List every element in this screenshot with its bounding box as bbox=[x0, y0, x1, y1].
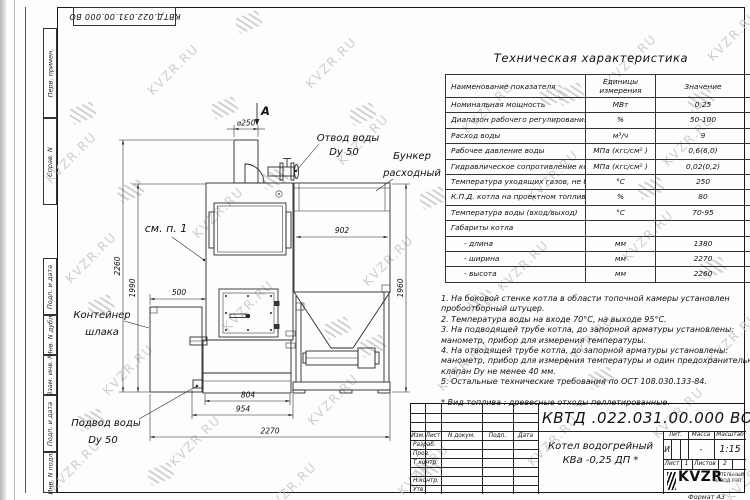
format-label: Формат А3 bbox=[688, 493, 745, 500]
tb-mass-value: - bbox=[688, 439, 714, 459]
notes-list: 1. На боковой стенке котла в области топ… bbox=[441, 294, 743, 408]
callouts: Отвод воды Dy 50 Бункер расходный см. п.… bbox=[71, 133, 441, 446]
top-stamp-text: КВТД.022.031.00.000 ВО bbox=[69, 12, 181, 21]
note-line: 5. Остальные технические требования по О… bbox=[441, 377, 743, 387]
spec-header-units: Единицы измерения bbox=[586, 75, 656, 98]
tb-role-utv: Утв. bbox=[411, 485, 443, 494]
margin-column-inv-dubl: Инв. N дубл. bbox=[43, 315, 57, 355]
note-line: 1. На боковой стенке котла в области топ… bbox=[441, 294, 743, 304]
tb-designation: КВТД .022.031.00.000 ВО bbox=[542, 405, 742, 430]
label-container-2: шлака bbox=[85, 327, 119, 338]
kvzr-spring-icon bbox=[667, 472, 676, 490]
tb-scale-value: 1:15 bbox=[714, 439, 746, 459]
dim-total-height: 2260 bbox=[113, 256, 122, 275]
tb-role-prov: Пров. bbox=[411, 449, 443, 458]
section-view-marker: А bbox=[255, 103, 270, 126]
tb-role-nkontr: Н.контр. bbox=[411, 476, 443, 485]
label-inlet-2: Dy 50 bbox=[88, 435, 118, 446]
dim-base-full: 954 bbox=[236, 405, 251, 414]
spec-row: - длинамм1380 bbox=[446, 236, 750, 251]
fuel-bunker bbox=[286, 183, 390, 393]
spec-row: Температура уходящих газов, не более°С25… bbox=[446, 175, 750, 190]
margin-column-inv-podl: Инв. N подл. bbox=[43, 452, 57, 493]
tb-sheet-label: Лист bbox=[663, 459, 681, 469]
dim-boiler-height: 1990 bbox=[128, 278, 137, 297]
tb-header-data: Дата bbox=[513, 431, 538, 440]
tb-header-ndoc: N докум. bbox=[441, 431, 482, 440]
title-block: Изм. Лист N докум. Подп. Дата Разраб. Пр… bbox=[410, 403, 745, 493]
note-line: 2. Температура воды на входе 70°С, на вы… bbox=[441, 315, 743, 325]
spec-row: Габариты котла bbox=[446, 221, 750, 236]
note-line bbox=[441, 388, 743, 398]
spec-row: Диапазон рабочего регулирования%50-100 bbox=[446, 113, 750, 128]
tb-sheet-num: 1 bbox=[681, 459, 692, 469]
spec-row: Рабочее давление водыМПа (кгс/см² )0,6(6… bbox=[446, 144, 750, 159]
tb-role-tkontr: Т.контр. bbox=[411, 458, 443, 467]
spec-row: Номинальная мощностьМВт0,25 bbox=[446, 98, 750, 113]
label-outlet-2: Dy 50 bbox=[329, 147, 359, 158]
tb-lit-header: Лит. bbox=[663, 431, 688, 439]
tb-header-list: Лист bbox=[425, 431, 441, 440]
dim-flue: ⌀250 bbox=[237, 119, 256, 128]
label-see-note: см. п. 1 bbox=[145, 222, 188, 235]
tb-mass-header: Масса bbox=[688, 431, 714, 439]
note-line: пробоотборный штуцер. bbox=[441, 304, 743, 314]
dim-bunker-height: 1960 bbox=[396, 278, 405, 297]
label-container-1: Контейнер bbox=[73, 310, 130, 321]
slag-container bbox=[150, 307, 202, 392]
label-outlet-1: Отвод воды bbox=[317, 133, 380, 144]
dim-bunker-width: 902 bbox=[335, 226, 350, 235]
note-line: 3. На подводящей трубе котла, до запорно… bbox=[441, 325, 743, 335]
label-bunker-2: расходный bbox=[382, 168, 441, 179]
dim-base-length: 804 bbox=[241, 391, 256, 400]
spec-table-body: Номинальная мощностьМВт0,25Диапазон рабо… bbox=[446, 98, 750, 283]
spec-row: К.П.Д. котла на проектном топливе%80 bbox=[446, 190, 750, 205]
tb-lit-value: И bbox=[663, 439, 671, 459]
spec-row: - высотамм2260 bbox=[446, 267, 750, 282]
margin-column-perv-primen: Перв. примен. bbox=[43, 28, 57, 118]
tb-sheets-num: 2 bbox=[718, 459, 732, 469]
spec-row: Расход водым³/ч9 bbox=[446, 128, 750, 143]
tb-sheets-label: Листов bbox=[692, 459, 718, 469]
tb-header-podp: Подп. bbox=[482, 431, 513, 440]
tb-product-name: Котел водогрейный КВа -0,25 ДП * bbox=[538, 434, 663, 474]
margin-column-podp-data-1: Подп. и дата bbox=[43, 258, 57, 315]
dim-total-width: 2270 bbox=[260, 427, 279, 436]
label-bunker-1: Бункер bbox=[393, 151, 431, 162]
spec-table: Наименование показателя Единицы измерени… bbox=[445, 74, 750, 283]
tb-role-razrab: Разраб. bbox=[411, 440, 443, 449]
tb-organization: КОТЕЛЬНЫЙ ЗАВОД РЭП bbox=[714, 473, 744, 485]
view-a-label: А bbox=[260, 104, 270, 118]
note-line: 4. На отводящей трубе котла, до запорной… bbox=[441, 346, 743, 356]
spec-row: - ширинамм2270 bbox=[446, 252, 750, 267]
spec-row: Температура воды (вход/выход)°С70-95 bbox=[446, 205, 750, 220]
label-inlet-1: Подвод воды bbox=[71, 418, 141, 429]
spec-table-title: Техническая характеристика bbox=[445, 51, 737, 65]
spec-row: Гидравлическое сопротивление котлаМПа (к… bbox=[446, 159, 750, 174]
boiler-body bbox=[190, 140, 299, 393]
margin-column-vzam-inv: Взам. инв. N bbox=[43, 355, 57, 395]
margin-column-sprav-n: Справ. N bbox=[43, 118, 57, 205]
drawing-sheet: KVZR.RUKVZR.RUKVZR.RUKVZR.RUKVZR.RUKVZR.… bbox=[0, 0, 750, 500]
note-line: манометр, прибор для измерения температу… bbox=[441, 356, 743, 366]
tb-scale-header: Масштаб bbox=[714, 431, 746, 439]
spec-header-name: Наименование показателя bbox=[446, 75, 586, 98]
margin-column-podp-data-2: Подп. и дата bbox=[43, 395, 57, 452]
note-line: манометр, прибор для измерения температу… bbox=[441, 336, 743, 346]
note-line: клапан Dу не менее 40 мм. bbox=[441, 367, 743, 377]
spec-header-value: Значение bbox=[656, 75, 750, 98]
dim-container-offset: 500 bbox=[172, 288, 187, 297]
top-stamp-box: КВТД.022.031.00.000 ВО bbox=[73, 7, 176, 26]
tb-header-izm: Изм. bbox=[411, 431, 425, 440]
